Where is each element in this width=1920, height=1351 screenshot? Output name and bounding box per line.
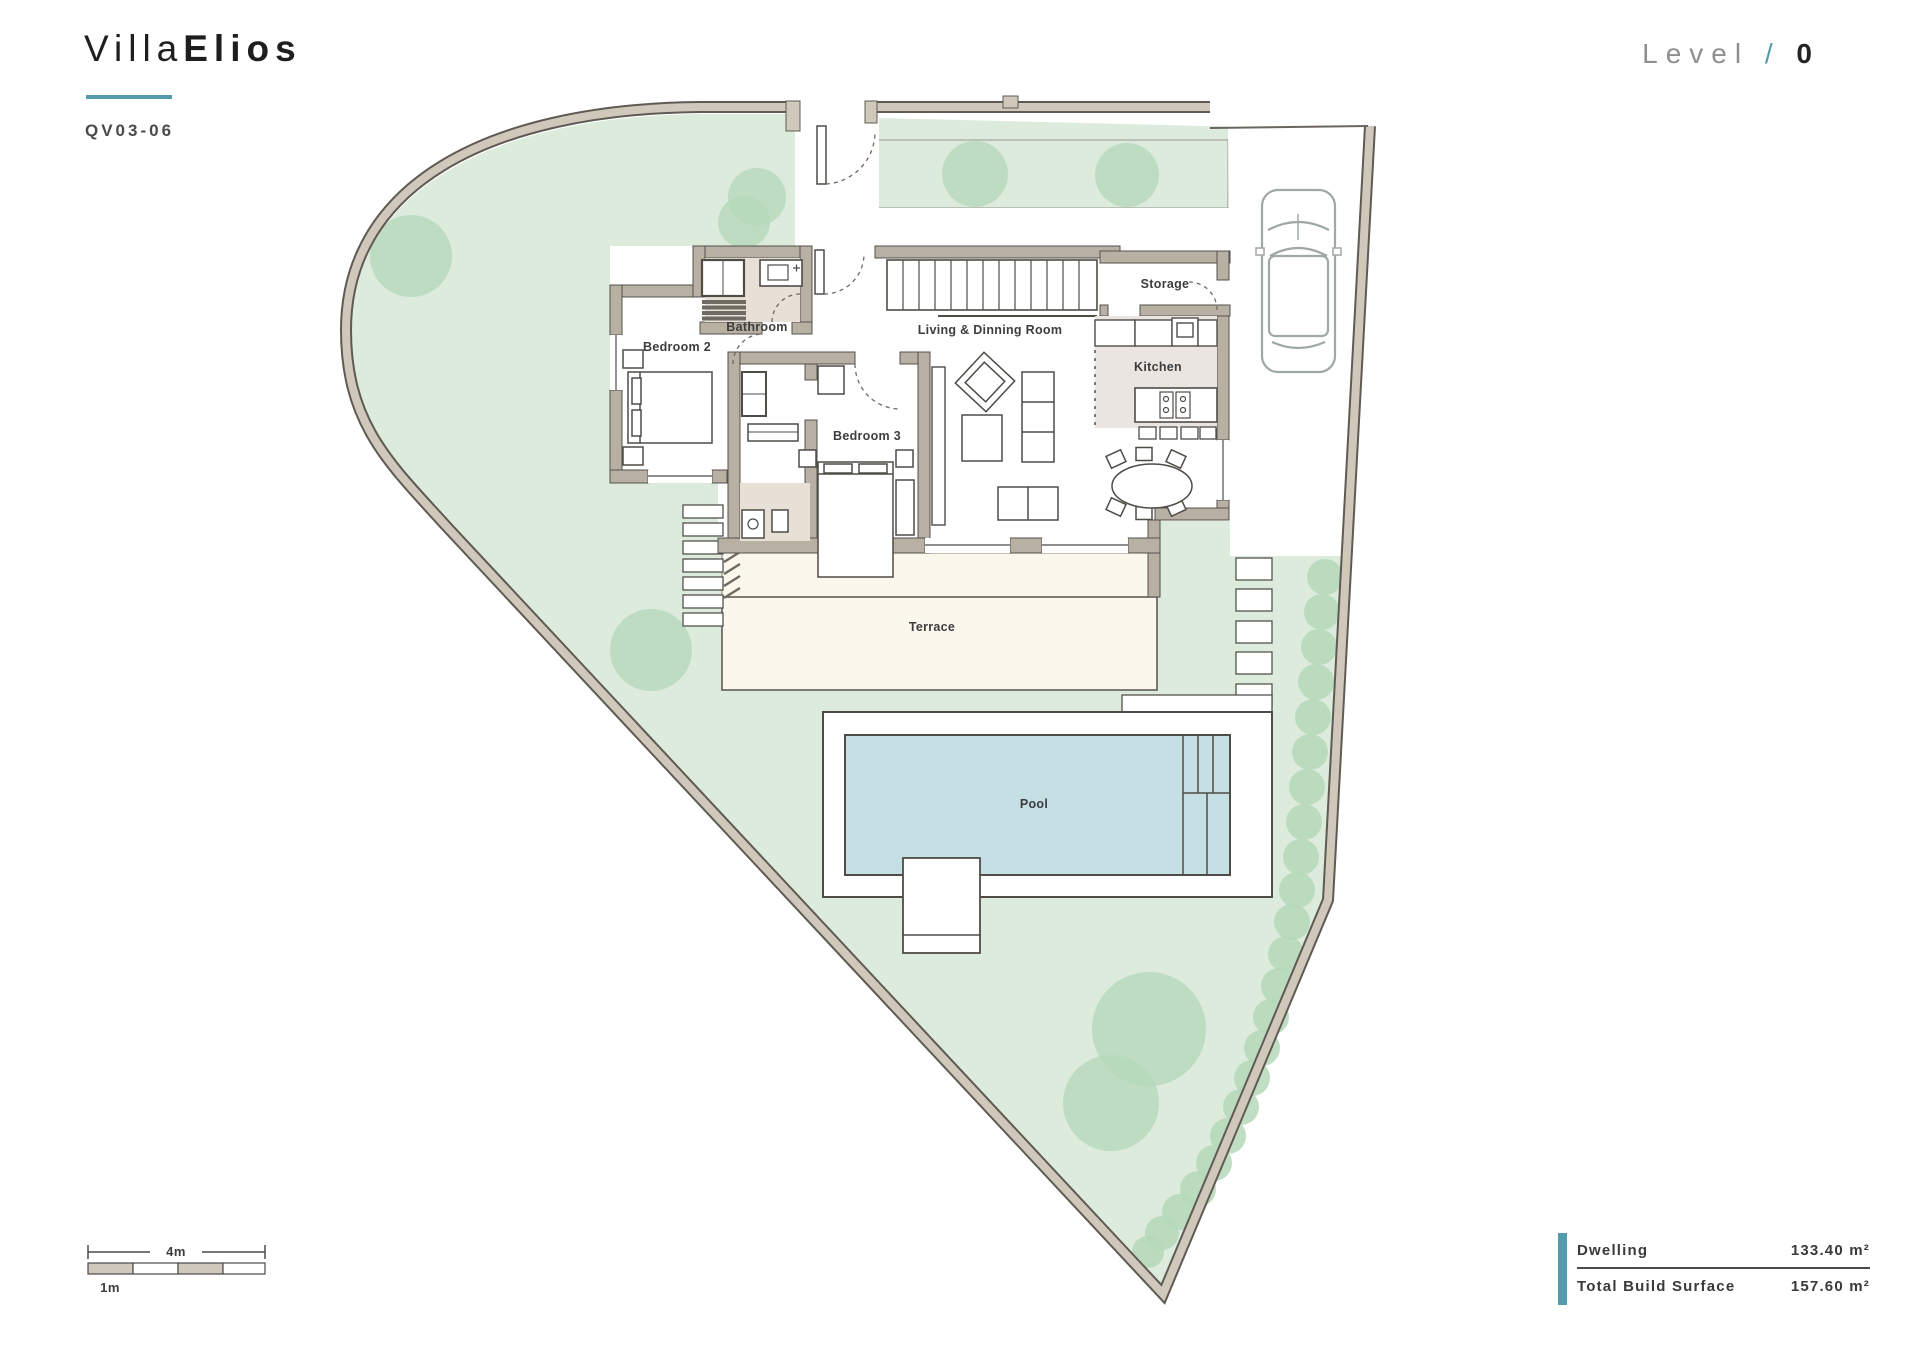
summary-value: 157.60 m²: [1791, 1278, 1870, 1295]
garden-strip: [877, 140, 1228, 208]
summary-row-dwelling: Dwelling 133.40 m²: [1577, 1233, 1870, 1267]
garden-steps-left: [683, 505, 723, 626]
pool-platform: [903, 858, 980, 953]
tree-icon: [610, 609, 692, 691]
storage-label: Storage: [1141, 277, 1190, 291]
bush-icon: [1307, 559, 1343, 595]
bedroom2-label: Bedroom 2: [643, 340, 711, 354]
tree-icon: [1063, 1055, 1159, 1151]
entrance-walkway: [795, 103, 879, 253]
kitchen-label: Kitchen: [1134, 360, 1182, 374]
bush-icon: [1304, 594, 1340, 630]
summary-value: 133.40 m²: [1791, 1242, 1870, 1259]
pool-label: Pool: [1020, 797, 1048, 811]
tree-icon: [718, 196, 770, 248]
area-summary: Dwelling 133.40 m² Total Build Surface 1…: [1558, 1233, 1870, 1303]
bedroom3-label: Bedroom 3: [833, 429, 901, 443]
tree-icon: [942, 141, 1008, 207]
bush-icon: [1283, 839, 1319, 875]
terrace-label: Terrace: [909, 620, 955, 634]
stools: [1139, 427, 1216, 439]
summary-label: Total Build Surface: [1577, 1278, 1735, 1295]
bush-icon: [1286, 804, 1322, 840]
nightstand: [799, 450, 816, 467]
nightstand: [896, 450, 913, 467]
car-icon: [1256, 190, 1341, 372]
bathroom-label: Bathroom: [726, 320, 787, 334]
bush-icon: [1279, 872, 1315, 908]
summary-row-total: Total Build Surface 157.60 m²: [1577, 1269, 1870, 1303]
scale-minor-label: 1m: [100, 1280, 120, 1295]
bush-icon: [1289, 769, 1325, 805]
bush-icon: [1298, 664, 1334, 700]
living-label: Living & Dinning Room: [918, 323, 1062, 337]
floor-plan: Terrace: [0, 0, 1920, 1351]
bush-icon: [1301, 629, 1337, 665]
bed: [818, 462, 893, 577]
bush-icon: [1295, 699, 1331, 735]
summary-label: Dwelling: [1577, 1242, 1648, 1259]
scale-bar: 4m 1m: [88, 1241, 265, 1295]
floor-plan-page: VillaElios QV03-06 Level / 0: [0, 0, 1920, 1351]
coffee-table: [962, 415, 1002, 461]
summary-accent-bar: [1558, 1233, 1567, 1305]
scale-major-label: 4m: [166, 1244, 186, 1259]
nightstand: [623, 447, 643, 465]
room-kitchen: Kitchen: [1095, 316, 1217, 439]
dining-table: [1112, 464, 1192, 508]
bush-icon: [1274, 904, 1310, 940]
tv-sideboard: [932, 367, 945, 525]
desk: [896, 480, 914, 535]
bush-icon: [1292, 734, 1328, 770]
dining-set: [1106, 448, 1192, 520]
terrace: Terrace: [722, 552, 1157, 690]
sink: [760, 260, 802, 286]
wardrobe: [818, 366, 844, 394]
tree-icon: [1095, 143, 1159, 207]
nightstand: [623, 350, 643, 368]
